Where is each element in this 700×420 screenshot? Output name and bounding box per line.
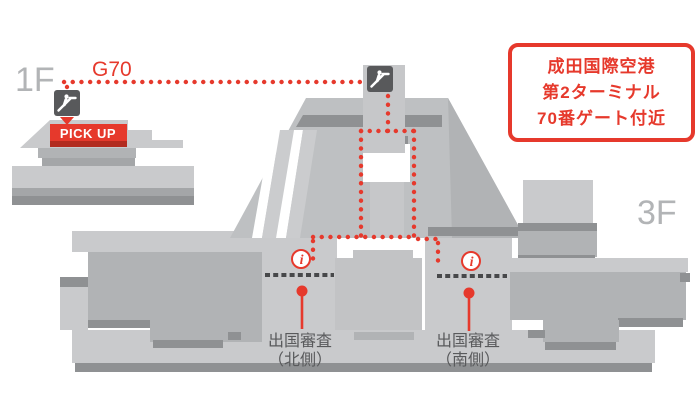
svg-text:出国審査: 出国審査: [268, 332, 332, 350]
svg-text:出国審査: 出国審査: [436, 332, 500, 350]
info-icon: i: [292, 250, 310, 268]
svg-text:（北側）: （北側）: [268, 351, 332, 369]
svg-text:（南側）: （南側）: [436, 351, 500, 369]
pickup-label: PICK UP: [60, 126, 116, 141]
airport-terminal-map: PICK UP: [0, 0, 700, 420]
info-box-line: 成田国際空港: [548, 54, 656, 80]
floor-label-1f: 1F: [15, 61, 55, 99]
location-info-box: 成田国際空港 第2ターミナル 70番ゲート付近: [508, 43, 695, 142]
escalator-icon: [367, 66, 393, 92]
route-dot: [65, 85, 69, 89]
svg-text:i: i: [470, 255, 474, 270]
svg-text:i: i: [300, 253, 304, 268]
pickup-banner: PICK UP: [50, 124, 127, 147]
info-box-line: 第2ターミナル: [542, 80, 660, 106]
escalator-icon: [54, 90, 80, 116]
info-box-line: 70番ゲート付近: [537, 106, 666, 132]
info-icon: i: [462, 252, 480, 270]
floor-label-3f: 3F: [637, 194, 677, 232]
gate-label-g70: G70: [92, 58, 132, 81]
terminal-1f-building: PICK UP: [12, 120, 194, 205]
